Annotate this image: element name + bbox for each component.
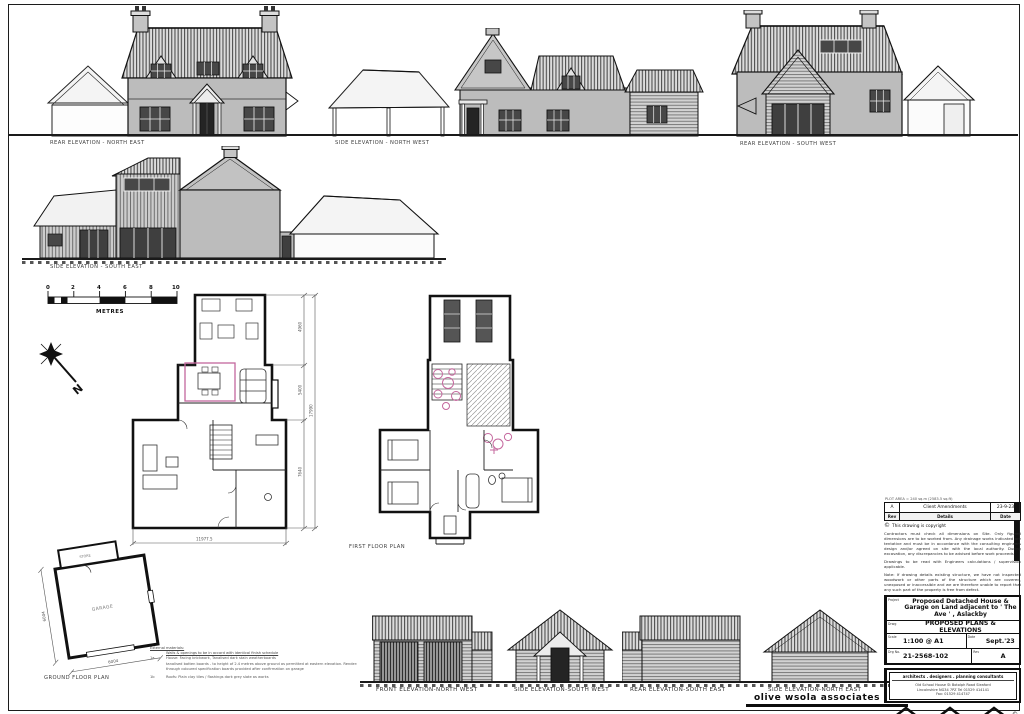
elevation-label-rear-sw: REAR ELEVATION - SOUTH WEST bbox=[740, 141, 836, 147]
garage-elevation-side-ne-drawing bbox=[762, 608, 878, 684]
chimney-icon bbox=[131, 6, 150, 32]
lean-to-garage bbox=[48, 66, 128, 136]
rev-value: A bbox=[987, 649, 1019, 663]
rooflight bbox=[820, 40, 862, 53]
svg-text:7640: 7640 bbox=[298, 466, 303, 477]
garage-elevation-label-side-sw: SIDE ELEVATION-SOUTH WEST bbox=[514, 687, 609, 693]
carport bbox=[329, 70, 449, 136]
window bbox=[499, 110, 521, 131]
middle-block bbox=[112, 158, 180, 258]
link bbox=[280, 232, 294, 258]
ground-line-bottom bbox=[360, 681, 890, 683]
materials-item: 1bRoofs: Plain clay tiles / flashings da… bbox=[150, 675, 368, 680]
link-wing bbox=[625, 70, 703, 136]
project-title: Proposed Detached House & Garage on Land… bbox=[902, 597, 1019, 620]
firm-box: architects . designers . planning consul… bbox=[884, 668, 1021, 703]
elevation-side-south-east-drawing bbox=[28, 146, 448, 268]
drgno-cell: Drg No. 21-2568-102 bbox=[887, 649, 972, 663]
general-note: Drawings to be read with Engineers calcu… bbox=[884, 559, 1021, 569]
materials-notes: External materials: Walls & openings to … bbox=[150, 646, 368, 680]
drawing-sheet: REAR ELEVATION - NORTH EAST SIDE ELEVATI… bbox=[0, 0, 1024, 714]
project-row: Project Proposed Detached House & Garage… bbox=[887, 597, 1019, 621]
firm-address: Fax: 01529 414747 bbox=[892, 692, 1014, 697]
chimney-icon bbox=[260, 6, 279, 32]
title-block: PLOT AREA = 240 sq.m (2583.5 sq.ft) A Cl… bbox=[884, 497, 1021, 714]
drawing-row: Drwg PROPOSED PLANS & ELEVATIONS bbox=[887, 621, 1019, 634]
scale-cell: Scale 1:100 @ A1 bbox=[887, 634, 967, 648]
drgno-rev-row: Drg No. 21-2568-102 Rev A bbox=[887, 649, 1019, 663]
general-note: Contractors must check all dimensions on… bbox=[884, 531, 1021, 556]
firm-zigzag-logo: © bbox=[884, 704, 1021, 714]
scale-value: 1:100 @ A1 bbox=[902, 634, 966, 648]
small-garage bbox=[904, 66, 974, 136]
revision-row: A Client Amendments 23-9-23 bbox=[885, 503, 1021, 513]
window bbox=[140, 107, 170, 131]
drgno-label: Drg No. bbox=[887, 649, 902, 663]
garage-door bbox=[380, 642, 418, 682]
drawing-title: PROPOSED PLANS & ELEVATIONS bbox=[902, 621, 1019, 633]
ground-line-second bbox=[22, 258, 446, 260]
firm-inner: architects . designers . planning consul… bbox=[889, 672, 1017, 700]
rev-label: Rev bbox=[972, 649, 987, 663]
date-label: Date bbox=[967, 634, 982, 648]
svg-text:17990: 17990 bbox=[309, 404, 314, 417]
garage-elevation-front-drawing bbox=[372, 612, 494, 684]
door bbox=[551, 648, 569, 682]
bay-window bbox=[272, 380, 278, 408]
garage-door bbox=[424, 642, 462, 682]
plan-label-ground-floor: GROUND FLOOR PLAN bbox=[44, 675, 109, 681]
project-box: Project Proposed Detached House & Garage… bbox=[884, 595, 1021, 665]
scale-date-row: Scale 1:100 @ A1 Date Sept.'23 bbox=[887, 634, 1019, 649]
revision-header-row: Rev Details Date bbox=[885, 512, 1021, 520]
garage-elevation-side-sw-drawing bbox=[506, 608, 614, 684]
copyright-text: This drawing is copyright bbox=[892, 524, 946, 529]
north-arrow-icon: N bbox=[36, 340, 88, 398]
elevation-label-side-se: SIDE ELEVATION - SOUTH EAST bbox=[50, 264, 143, 270]
window bbox=[197, 62, 219, 75]
svg-text:6004: 6004 bbox=[40, 611, 47, 622]
first-floor-plan-drawing bbox=[372, 290, 552, 552]
general-note: Note: If drawing details existing struct… bbox=[884, 572, 1021, 592]
side-canopy bbox=[286, 92, 298, 110]
window bbox=[485, 60, 501, 73]
svg-text:5400: 5400 bbox=[298, 384, 303, 395]
ground-line-top bbox=[8, 134, 1018, 136]
chimney-icon bbox=[860, 10, 878, 28]
drgno-value: 21-2568-102 bbox=[902, 649, 971, 663]
svg-text:4: 4 bbox=[97, 285, 101, 291]
svg-text:4960: 4960 bbox=[298, 321, 303, 332]
main-gable bbox=[180, 146, 280, 258]
attached-garage bbox=[290, 196, 438, 258]
date-value: Sept.'23 bbox=[982, 634, 1019, 648]
copyright-icon: © bbox=[884, 523, 890, 529]
void-hatch bbox=[467, 364, 510, 426]
date-cell: Date Sept.'23 bbox=[967, 634, 1019, 648]
svg-text:0: 0 bbox=[46, 285, 50, 291]
copyright-line: © This drawing is copyright bbox=[884, 523, 1021, 529]
drawing-label: Drwg bbox=[887, 621, 902, 633]
rev-cell: Rev A bbox=[972, 649, 1019, 663]
garage-elevation-rear-drawing bbox=[622, 612, 742, 684]
svg-text:2: 2 bbox=[71, 285, 75, 291]
window bbox=[870, 90, 890, 112]
chimney-icon bbox=[744, 10, 762, 28]
svg-text:11977.5: 11977.5 bbox=[196, 537, 213, 542]
window bbox=[244, 107, 274, 131]
chimney-icon bbox=[486, 28, 499, 35]
ground-hatch-second bbox=[22, 261, 446, 264]
svg-text:6004: 6004 bbox=[108, 658, 119, 665]
left-wing bbox=[34, 190, 116, 258]
plot-area-note: PLOT AREA = 240 sq.m (2583.5 sq.ft) bbox=[885, 497, 1021, 501]
ground-floor-plan-drawing: 4960 5400 7640 17990 11977.5 bbox=[118, 285, 323, 557]
elevation-rear-south-west-drawing bbox=[722, 10, 997, 138]
firm-watermark: olive wsola associates bbox=[754, 693, 880, 703]
garage-elevation-label-rear-se: REAR ELEVATION-SOUTH EAST bbox=[630, 687, 725, 693]
scale-label: Scale bbox=[887, 634, 902, 648]
elevation-rear-north-east-drawing bbox=[40, 6, 320, 138]
project-label: Project bbox=[887, 597, 902, 620]
svg-text:N: N bbox=[70, 382, 85, 398]
garage-elevation-label-front: FRONT ELEVATION-NORTH WEST bbox=[376, 687, 478, 693]
elevation-side-north-west-drawing bbox=[325, 28, 707, 138]
revision-table: A Client Amendments 23-9-23 Rev Details … bbox=[884, 502, 1021, 521]
firm-tagline: architects . designers . planning consul… bbox=[892, 674, 1014, 681]
materials-item-detail: tanalised batten boards - to height of 2… bbox=[166, 662, 368, 672]
window bbox=[547, 110, 569, 131]
plan-label-first-floor: FIRST FLOOR PLAN bbox=[349, 544, 405, 550]
